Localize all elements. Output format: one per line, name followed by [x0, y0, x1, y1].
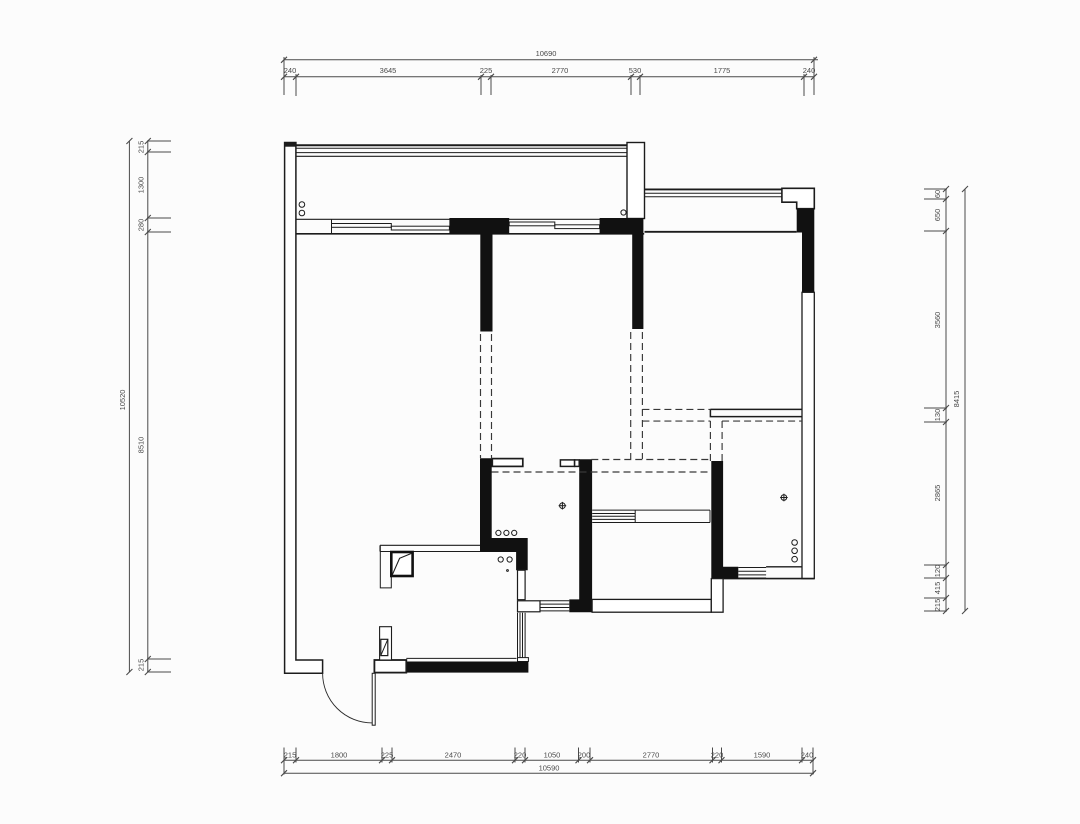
svg-text:10590: 10590: [539, 764, 560, 773]
svg-text:225: 225: [381, 751, 394, 760]
svg-text:1775: 1775: [714, 66, 731, 75]
svg-text:220: 220: [711, 751, 724, 760]
svg-text:1050: 1050: [544, 751, 561, 760]
svg-text:415: 415: [933, 582, 942, 595]
svg-text:8415: 8415: [952, 391, 961, 408]
svg-text:60: 60: [933, 190, 942, 198]
svg-text:130: 130: [933, 409, 942, 422]
svg-text:10520: 10520: [118, 390, 127, 411]
svg-text:8510: 8510: [137, 437, 146, 454]
svg-text:2770: 2770: [552, 66, 569, 75]
svg-text:240: 240: [801, 751, 814, 760]
svg-text:3645: 3645: [380, 66, 397, 75]
svg-text:280: 280: [137, 219, 146, 232]
svg-text:1800: 1800: [331, 751, 348, 760]
svg-text:530: 530: [629, 66, 642, 75]
svg-text:215: 215: [137, 141, 146, 154]
svg-text:225: 225: [480, 66, 493, 75]
svg-text:1590: 1590: [754, 751, 771, 760]
svg-text:220: 220: [514, 751, 527, 760]
svg-text:215: 215: [284, 751, 297, 760]
svg-text:1300: 1300: [137, 177, 146, 194]
svg-text:2470: 2470: [445, 751, 462, 760]
svg-text:215: 215: [137, 659, 146, 672]
svg-text:215: 215: [933, 599, 942, 612]
svg-text:200: 200: [578, 751, 591, 760]
svg-text:2770: 2770: [643, 751, 660, 760]
svg-text:240: 240: [284, 66, 297, 75]
svg-text:10690: 10690: [536, 49, 557, 58]
svg-text:120: 120: [933, 565, 942, 578]
svg-text:240: 240: [803, 66, 816, 75]
svg-text:3560: 3560: [933, 312, 942, 329]
svg-text:2865: 2865: [933, 485, 942, 502]
svg-text:650: 650: [933, 209, 942, 222]
